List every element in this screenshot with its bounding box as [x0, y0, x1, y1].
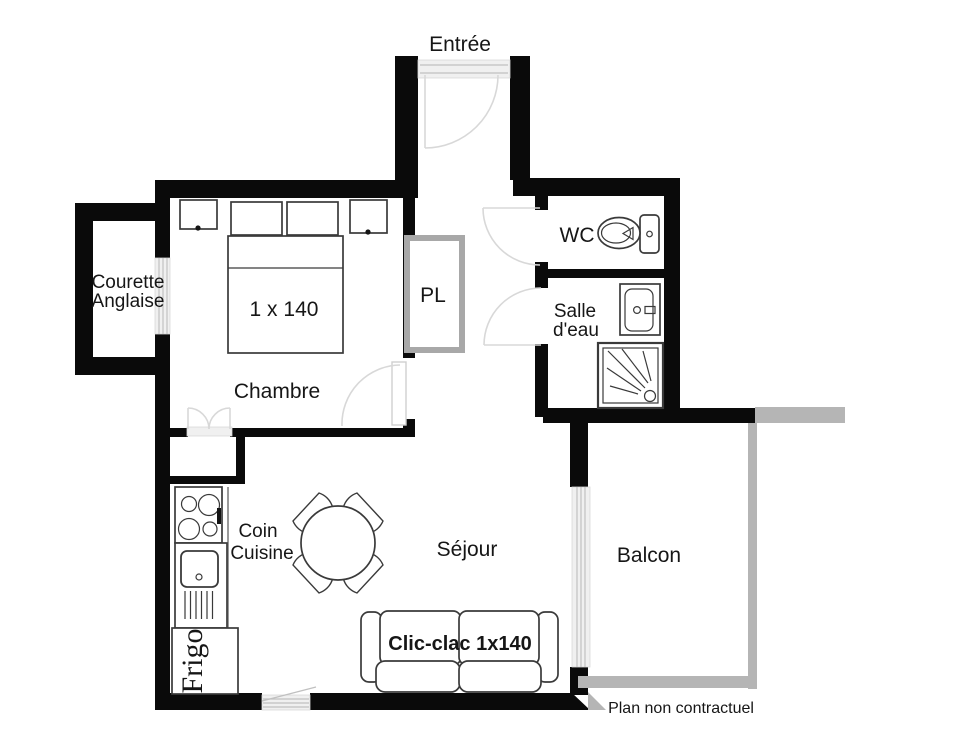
double-door-arc [188, 408, 209, 429]
nightstand-handle [195, 225, 200, 230]
railing-segment [578, 676, 757, 688]
wall-segment [236, 437, 245, 477]
wall-segment [75, 203, 93, 375]
dining-table [301, 506, 375, 580]
floor-plan-drawing: Entrée Courette Anglaise 1 x 140 Chambre… [0, 0, 960, 738]
wall-segment [165, 428, 188, 437]
wall-segment [513, 178, 680, 196]
nightstand-left [180, 200, 217, 229]
double-bed [228, 236, 343, 353]
room-label-coin-cuisine-line1: Coin [238, 521, 277, 542]
room-label-balcon: Balcon [617, 544, 681, 567]
nightstand-right [350, 200, 387, 233]
wall-segment [165, 476, 245, 484]
room-label-wc: WC [560, 224, 595, 247]
wall-segment [230, 428, 415, 437]
wall-segment [310, 693, 572, 710]
wall-segment [535, 262, 548, 288]
bathroom-fixtures [598, 284, 663, 408]
room-label-chambre: Chambre [234, 380, 320, 403]
stove-handle [217, 508, 221, 524]
disclaimer-text: Plan non contractuel [608, 700, 754, 717]
sofa-seat-cushion [459, 661, 541, 692]
entry-threshold [418, 60, 510, 78]
room-label-placard: PL [420, 284, 446, 307]
toilet-bowl [598, 218, 640, 249]
wall-segment [155, 693, 262, 710]
railing-bevel [588, 692, 606, 710]
bed-size-label: 1 x 140 [250, 298, 319, 321]
room-label-coin-cuisine-line2: Cuisine [230, 543, 293, 564]
room-label-salle-eau-line2: d'eau [553, 320, 599, 341]
toilet-tank [640, 215, 659, 253]
wall-bevel [572, 693, 590, 710]
shower-tray [598, 343, 663, 408]
double-door-arc [209, 408, 230, 429]
sofa-seat-cushion [376, 661, 460, 692]
wall-segment [570, 417, 588, 487]
chamber-door-arc [342, 365, 400, 426]
entry-door-arc [425, 75, 498, 148]
sofa-label: Clic-clac 1x140 [388, 633, 531, 655]
nightstand-handle [365, 229, 370, 234]
bedroom-furniture [180, 200, 387, 353]
wall-segment [155, 198, 170, 258]
wall-segment [155, 180, 418, 198]
wall-segment [510, 56, 530, 180]
room-label-sejour: Séjour [437, 538, 498, 561]
room-label-courette-line2: Anglaise [92, 291, 165, 312]
wall-segment [155, 334, 170, 710]
pillow-left [231, 202, 282, 235]
floor-plan: Entrée Courette Anglaise 1 x 140 Chambre… [0, 0, 960, 738]
railing-segment [748, 423, 757, 689]
wall-segment [535, 344, 548, 417]
wall-segment [548, 269, 664, 278]
room-label-salle-eau-line1: Salle [554, 301, 596, 322]
railing-segment [755, 407, 845, 423]
wc-door-arc [483, 208, 540, 265]
room-label-courette-line1: Courette [92, 272, 165, 293]
wall-segment [395, 56, 418, 198]
bathroom-door-arc [484, 288, 541, 345]
wc-fixtures [598, 215, 659, 253]
pillow-right [287, 202, 338, 235]
fridge-label: Frigo [176, 628, 209, 693]
room-label-entree: Entrée [429, 33, 491, 56]
chamber-door-leaf [392, 362, 406, 425]
living-room-furniture [293, 493, 558, 692]
wall-segment [75, 357, 157, 375]
wall-segment [664, 178, 680, 423]
